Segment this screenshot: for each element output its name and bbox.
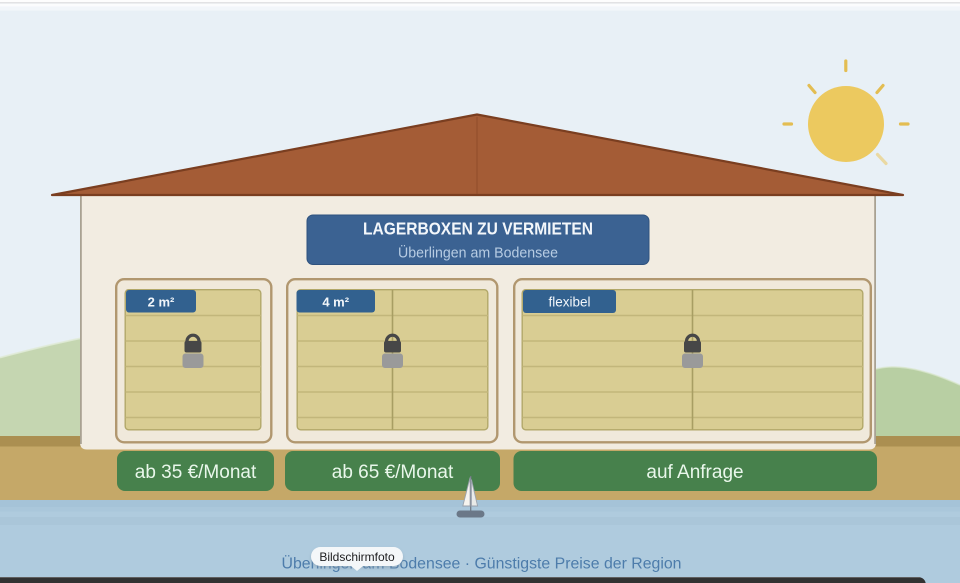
svg-text:flexibel: flexibel xyxy=(548,295,590,310)
svg-text:auf Anfrage: auf Anfrage xyxy=(646,462,743,483)
svg-text:Bildschirmfoto: Bildschirmfoto xyxy=(319,550,395,564)
svg-text:ab 65 €/Monat: ab 65 €/Monat xyxy=(332,462,454,483)
svg-text:2 m²: 2 m² xyxy=(148,295,175,310)
svg-text:4 m²: 4 m² xyxy=(322,295,349,310)
svg-text:LAGERBOXEN ZU VERMIETEN: LAGERBOXEN ZU VERMIETEN xyxy=(363,219,593,239)
svg-text:ab 35 €/Monat: ab 35 €/Monat xyxy=(135,462,257,483)
svg-text:Überlingen am Bodensee: Überlingen am Bodensee xyxy=(398,244,558,262)
